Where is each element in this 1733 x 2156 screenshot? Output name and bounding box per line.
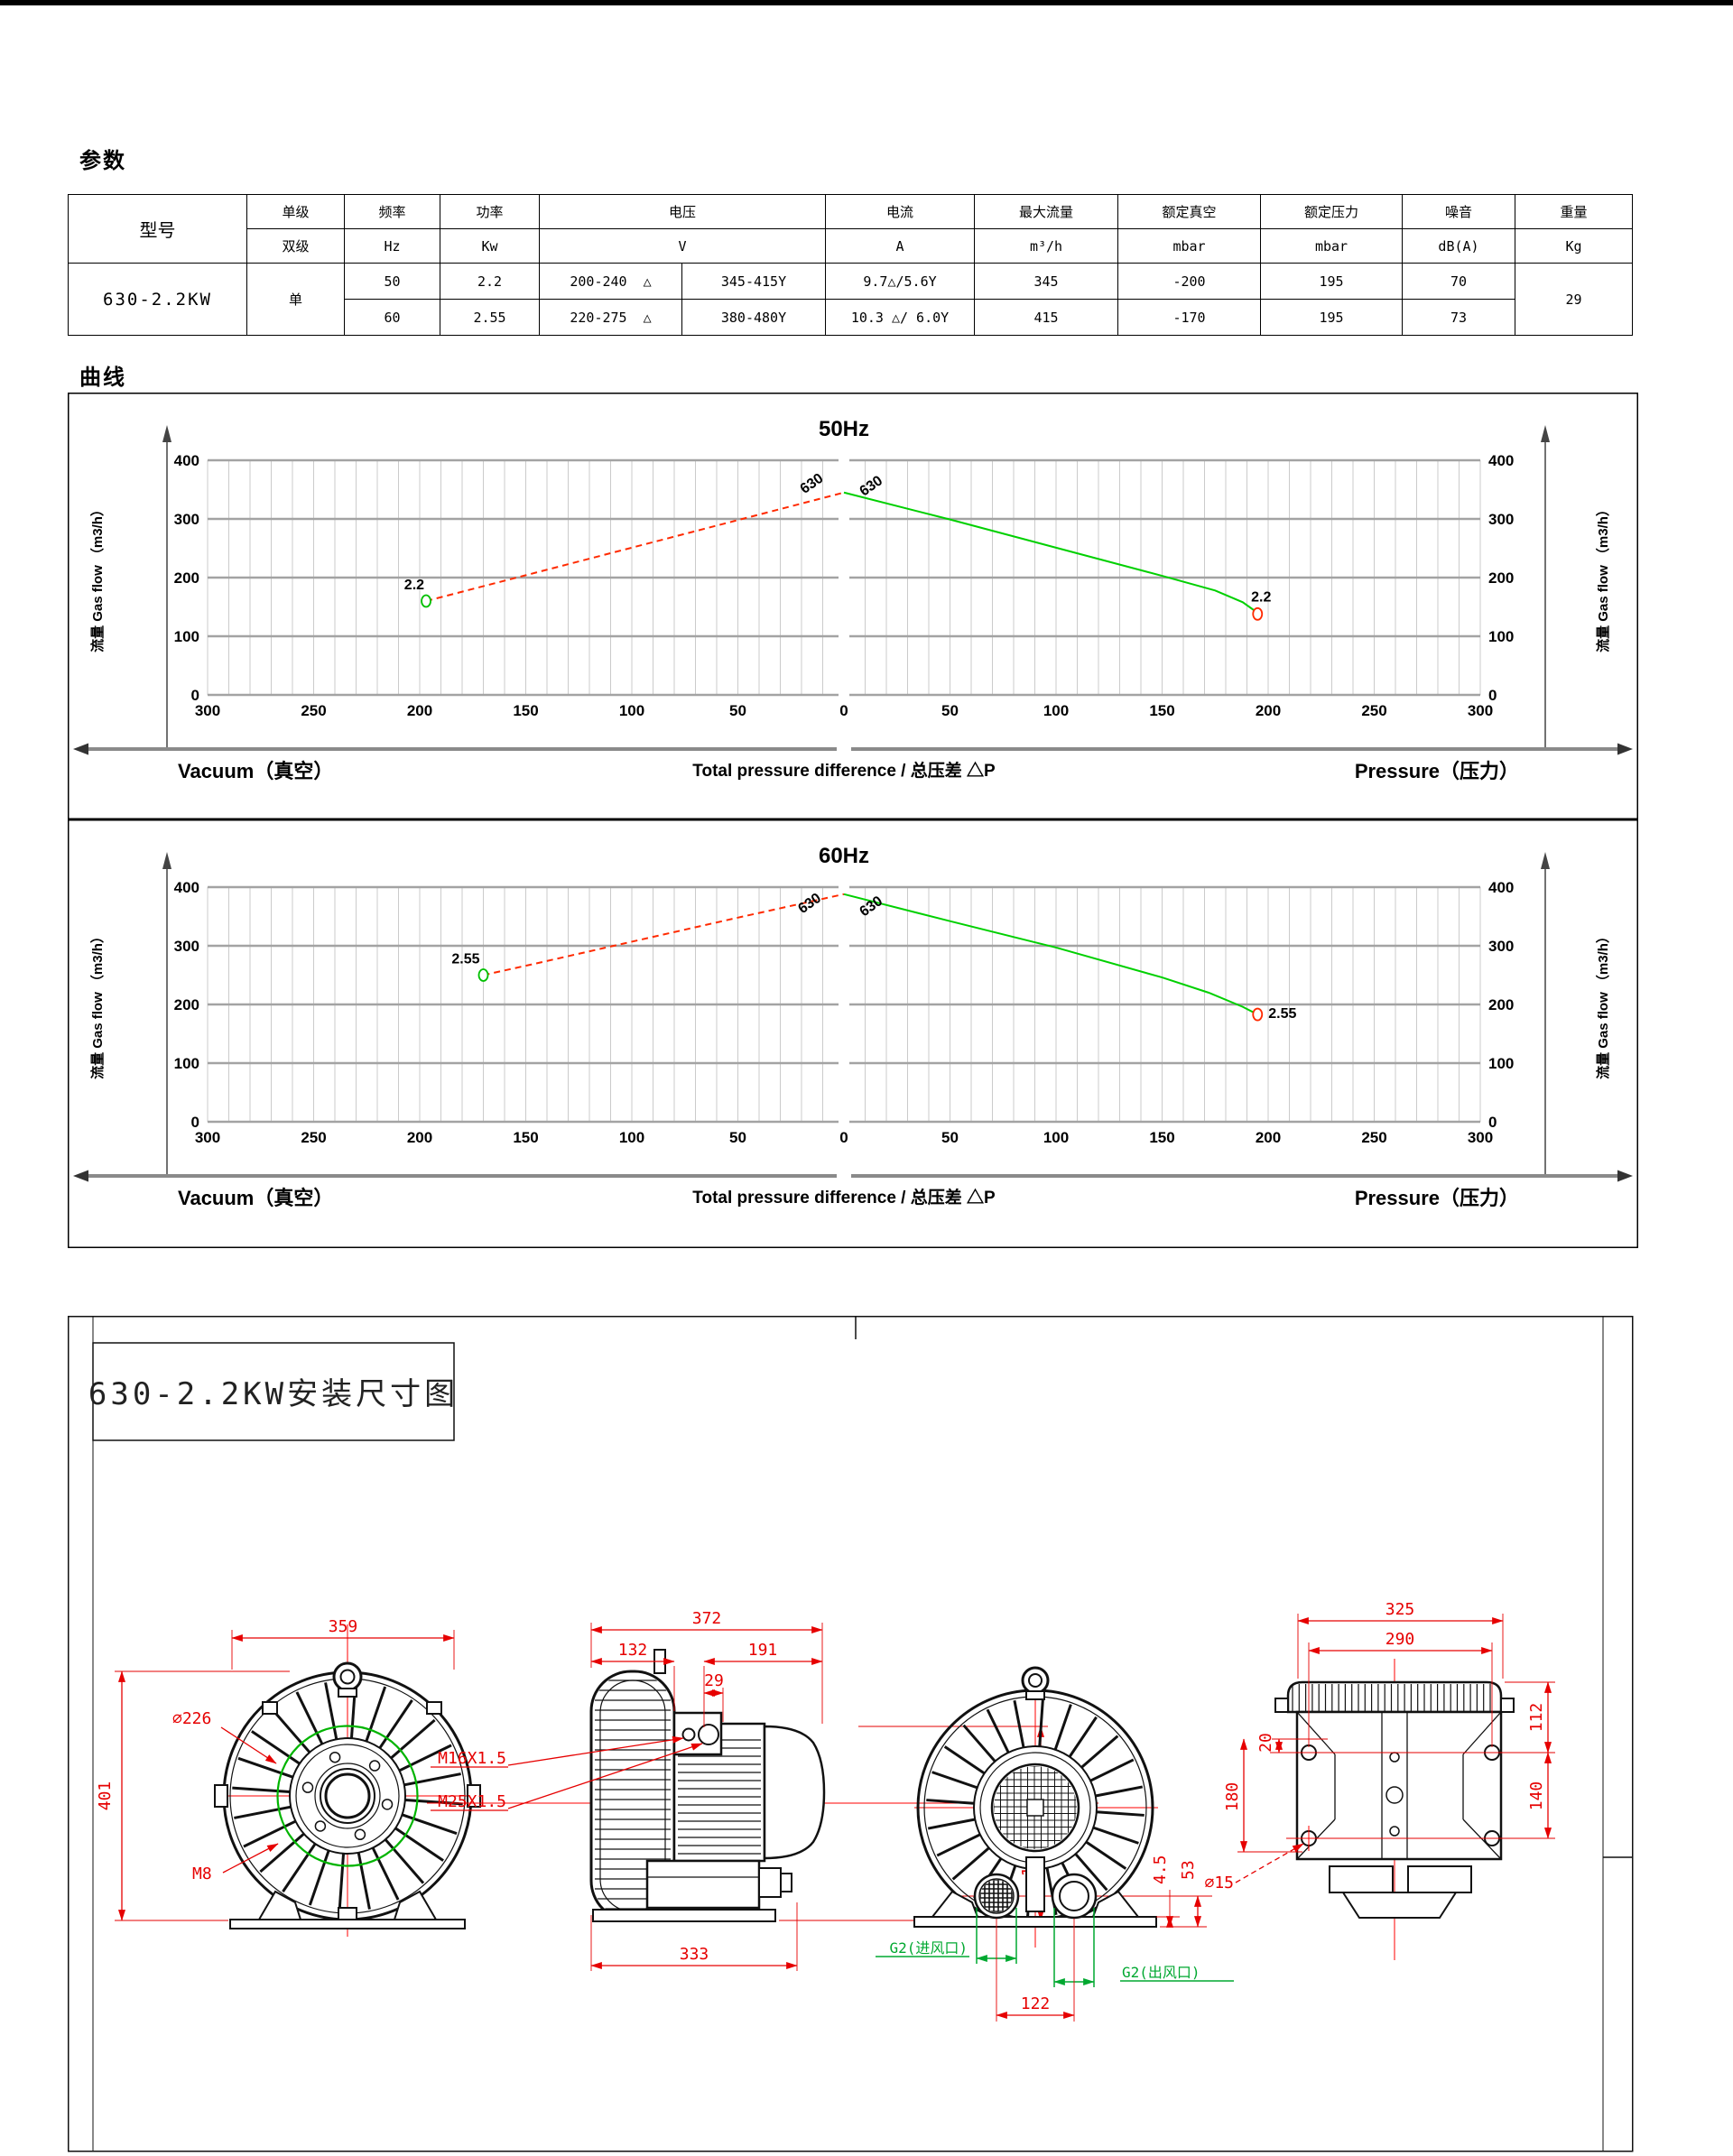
svg-text:流量 Gas flow （m3/h）: 流量 Gas flow （m3/h） [1595,930,1611,1079]
unit-current: A [826,229,975,264]
cell-current: 9.7△/5.6Y [826,264,975,300]
svg-text:250: 250 [301,1129,326,1146]
cell-noise: 73 [1403,300,1515,336]
svg-text:0: 0 [1488,1114,1497,1131]
view-top: 325 290 112 140 20 180 ∅15 [1204,1600,1555,1960]
svg-text:150: 150 [1149,1129,1174,1146]
dim-w: 325 [1385,1600,1415,1619]
col-header-voltage: 电压 [540,195,826,229]
col-header-freq: 频率 [345,195,440,229]
dim-bolt: M8 [192,1865,212,1883]
cell-vacuum: -200 [1118,264,1261,300]
datasheet-page: 参数 型号 单级 频率 功率 电压 电流 最大流量 额定真空 额定压力 噪音 重… [0,0,1733,2156]
svg-text:300: 300 [1468,702,1493,719]
svg-text:流量 Gas flow （m3/h）: 流量 Gas flow （m3/h） [1595,503,1611,652]
body [1297,1712,1501,1859]
svg-text:Total pressure difference / 总压: Total pressure difference / 总压差 △P [692,1187,996,1208]
svg-text:400: 400 [1488,452,1514,469]
svg-text:Vacuum（真空）: Vacuum（真空） [178,760,333,782]
svg-text:2.2: 2.2 [404,578,424,593]
dim-h2: 140 [1527,1781,1546,1811]
col-header-stage-single: 单级 [247,195,345,229]
dim-offset: 29 [704,1671,724,1690]
cell-kw: 2.55 [440,300,540,336]
unit-freq: Hz [345,229,440,264]
gland-m25 [699,1725,718,1744]
svg-text:200: 200 [174,569,199,587]
svg-text:0: 0 [839,702,848,719]
drawing-title: 630-2.2KW安装尺寸图 [88,1376,459,1412]
top-black-bar [0,0,1733,5]
installation-drawing: 630-2.2KW安装尺寸图 [68,1316,1638,2156]
svg-text:200: 200 [1488,569,1514,587]
col-header-power: 功率 [440,195,540,229]
cell-current: 10.3 △/ 6.0Y [826,300,975,336]
cell-flow: 345 [975,264,1118,300]
svg-text:Pressure（压力）: Pressure（压力） [1355,760,1519,782]
svg-text:150: 150 [1149,702,1174,719]
svg-text:50: 50 [729,702,746,719]
foot-right [394,1892,436,1920]
unit-vacuum: mbar [1118,229,1261,264]
dim-ring-dia: ∅226 [172,1709,211,1728]
col-header-vacuum: 额定真空 [1118,195,1261,229]
svg-text:流量 Gas flow （m3/h）: 流量 Gas flow （m3/h） [89,503,106,652]
dim-ring: 132 [618,1641,648,1660]
svg-text:200: 200 [1488,996,1514,1013]
unit-weight: Kg [1515,229,1633,264]
svg-text:50: 50 [941,702,959,719]
svg-text:400: 400 [1488,879,1514,896]
col-header-maxflow: 最大流量 [975,195,1118,229]
svg-text:100: 100 [1488,1055,1514,1072]
performance-chart-50hz: 3002502001501005005010015020025030000100… [68,393,1638,819]
svg-text:100: 100 [1043,702,1069,719]
svg-text:0: 0 [191,1114,199,1131]
cell-hz: 60 [345,300,440,336]
stage-value: 单 [247,264,345,336]
svg-text:0: 0 [839,1129,848,1146]
foot-left [259,1892,301,1920]
cell-pressure: 195 [1261,300,1403,336]
section-heading-curves: 曲线 [79,359,126,391]
svg-text:630: 630 [795,891,824,917]
gland-small-label: M16X1.5 [438,1749,506,1768]
svg-text:Pressure（压力）: Pressure（压力） [1355,1187,1519,1209]
outlet-label: G2(出风口) [1122,1964,1200,1981]
svg-text:400: 400 [174,879,199,896]
unit-noise: dB(A) [1403,229,1515,264]
dim-holes-w: 290 [1385,1630,1415,1649]
svg-text:400: 400 [174,452,199,469]
base-plate [914,1917,1156,1927]
motor-end-cap [765,1726,824,1858]
cell-weight: 29 [1515,264,1633,336]
gland-big-label: M25X1.5 [438,1792,506,1811]
dim-hole-dia: ∅15 [1204,1874,1234,1892]
col-header-model: 型号 [69,195,247,264]
svg-text:250: 250 [301,702,326,719]
svg-text:100: 100 [1043,1129,1069,1146]
svg-text:200: 200 [1256,1129,1281,1146]
fin-cap [1288,1682,1501,1712]
svg-text:2.55: 2.55 [451,952,479,967]
base-plate [593,1910,775,1921]
section-heading-parameters: 参数 [79,143,126,174]
svg-text:300: 300 [1488,511,1514,528]
table-row-50hz: 630-2.2KW 单 50 2.2 200-240△ 345-415Y 9.7… [69,264,1633,300]
svg-text:150: 150 [513,702,538,719]
dim-edge: 20 [1256,1733,1275,1753]
dim-total: 372 [692,1609,722,1628]
svg-text:流量 Gas flow （m3/h）: 流量 Gas flow （m3/h） [89,930,106,1079]
foot-right [1093,1892,1138,1917]
base-plate [230,1920,465,1929]
svg-text:300: 300 [174,938,199,955]
svg-text:250: 250 [1361,702,1386,719]
svg-text:Vacuum（真空）: Vacuum（真空） [178,1187,333,1209]
svg-text:0: 0 [191,687,199,704]
cell-pressure: 195 [1261,264,1403,300]
svg-text:200: 200 [407,702,432,719]
performance-chart-60hz: 3002502001501005005010015020025030000100… [68,819,1638,1248]
dim-foot: 53 [1179,1860,1198,1880]
svg-text:50: 50 [729,1129,746,1146]
cell-vacuum: -170 [1118,300,1261,336]
svg-text:0: 0 [1488,687,1497,704]
cell-kw: 2.2 [440,264,540,300]
dim-plate: 4.5 [1151,1855,1170,1884]
svg-text:200: 200 [174,996,199,1013]
foot-left [932,1892,978,1917]
cell-voltage-delta: 200-240△ [540,264,682,300]
cell-noise: 70 [1403,264,1515,300]
muffler-box [647,1861,759,1908]
svg-text:100: 100 [1488,628,1514,645]
svg-text:50: 50 [941,1129,959,1146]
dim-h1: 112 [1527,1703,1546,1733]
svg-text:2.2: 2.2 [1251,589,1271,605]
gland-m16 [683,1729,695,1741]
unit-pressure: mbar [1261,229,1403,264]
svg-text:630: 630 [857,893,886,920]
cell-hz: 50 [345,264,440,300]
svg-text:250: 250 [1361,1129,1386,1146]
col-header-pressure: 额定压力 [1261,195,1403,229]
svg-text:60Hz: 60Hz [819,844,869,868]
view-front: 359 401 ∅226 M8 [96,1617,480,1937]
inlet-label: G2(进风口) [889,1939,968,1957]
dim-port-spacing: 122 [1021,1994,1051,2013]
cell-voltage-y: 380-480Y [682,300,826,336]
svg-text:50Hz: 50Hz [819,417,869,441]
col-header-weight: 重量 [1515,195,1633,229]
svg-text:300: 300 [195,702,220,719]
cell-voltage-delta: 220-275△ [540,300,682,336]
svg-text:630: 630 [857,473,886,499]
col-header-noise: 噪音 [1403,195,1515,229]
dim-height: 401 [96,1781,115,1811]
svg-text:100: 100 [174,1055,199,1072]
svg-text:2.55: 2.55 [1268,1006,1296,1022]
unit-voltage: V [540,229,826,264]
dim-width: 359 [329,1617,358,1636]
svg-text:300: 300 [1488,938,1514,955]
col-header-current: 电流 [826,195,975,229]
svg-text:300: 300 [174,511,199,528]
svg-text:100: 100 [619,702,644,719]
dim-motor: 191 [748,1641,778,1660]
col-header-stage-double: 双级 [247,229,345,264]
cell-voltage-y: 345-415Y [682,264,826,300]
svg-text:300: 300 [1468,1129,1493,1146]
unit-maxflow: m³/h [975,229,1118,264]
svg-text:200: 200 [1256,702,1281,719]
unit-power: Kw [440,229,540,264]
svg-text:Total pressure difference / 总压: Total pressure difference / 总压差 △P [692,760,996,781]
svg-text:200: 200 [407,1129,432,1146]
svg-text:300: 300 [195,1129,220,1146]
svg-text:100: 100 [174,628,199,645]
dim-base: 333 [680,1945,709,1964]
view-rear: G2(进风口) G2(出风口) 122 4.5 53 [876,1668,1234,2022]
dim-h3: 180 [1223,1782,1242,1812]
model-value: 630-2.2KW [69,264,247,336]
svg-text:150: 150 [513,1129,538,1146]
svg-text:100: 100 [619,1129,644,1146]
cell-flow: 415 [975,300,1118,336]
parameters-table: 型号 单级 频率 功率 电压 电流 最大流量 额定真空 额定压力 噪音 重量 双… [68,194,1633,336]
